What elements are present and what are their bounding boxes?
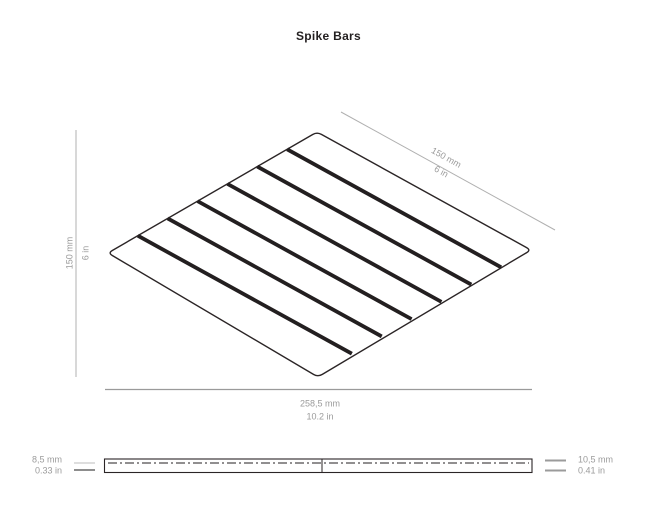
dim-label-bottom-mm: 258,5 mm <box>300 400 340 409</box>
technical-drawing <box>0 0 671 529</box>
dim-label-profile-right-in: 0.41 in <box>578 467 605 476</box>
dim-label-left-mm: 150 mm <box>66 237 75 270</box>
drawing-canvas: Spike Bars 150 mm 6 in 150 mm 6 in 258,5… <box>0 0 671 529</box>
dim-label-bottom-in: 10.2 in <box>306 413 333 422</box>
dim-label-left-in: 6 in <box>82 246 91 261</box>
dim-label-profile-left-mm: 8,5 mm <box>32 456 62 465</box>
dim-label-profile-right-mm: 10,5 mm <box>578 456 613 465</box>
dim-label-profile-left-in: 0.33 in <box>35 467 62 476</box>
profile-outline <box>105 459 533 473</box>
